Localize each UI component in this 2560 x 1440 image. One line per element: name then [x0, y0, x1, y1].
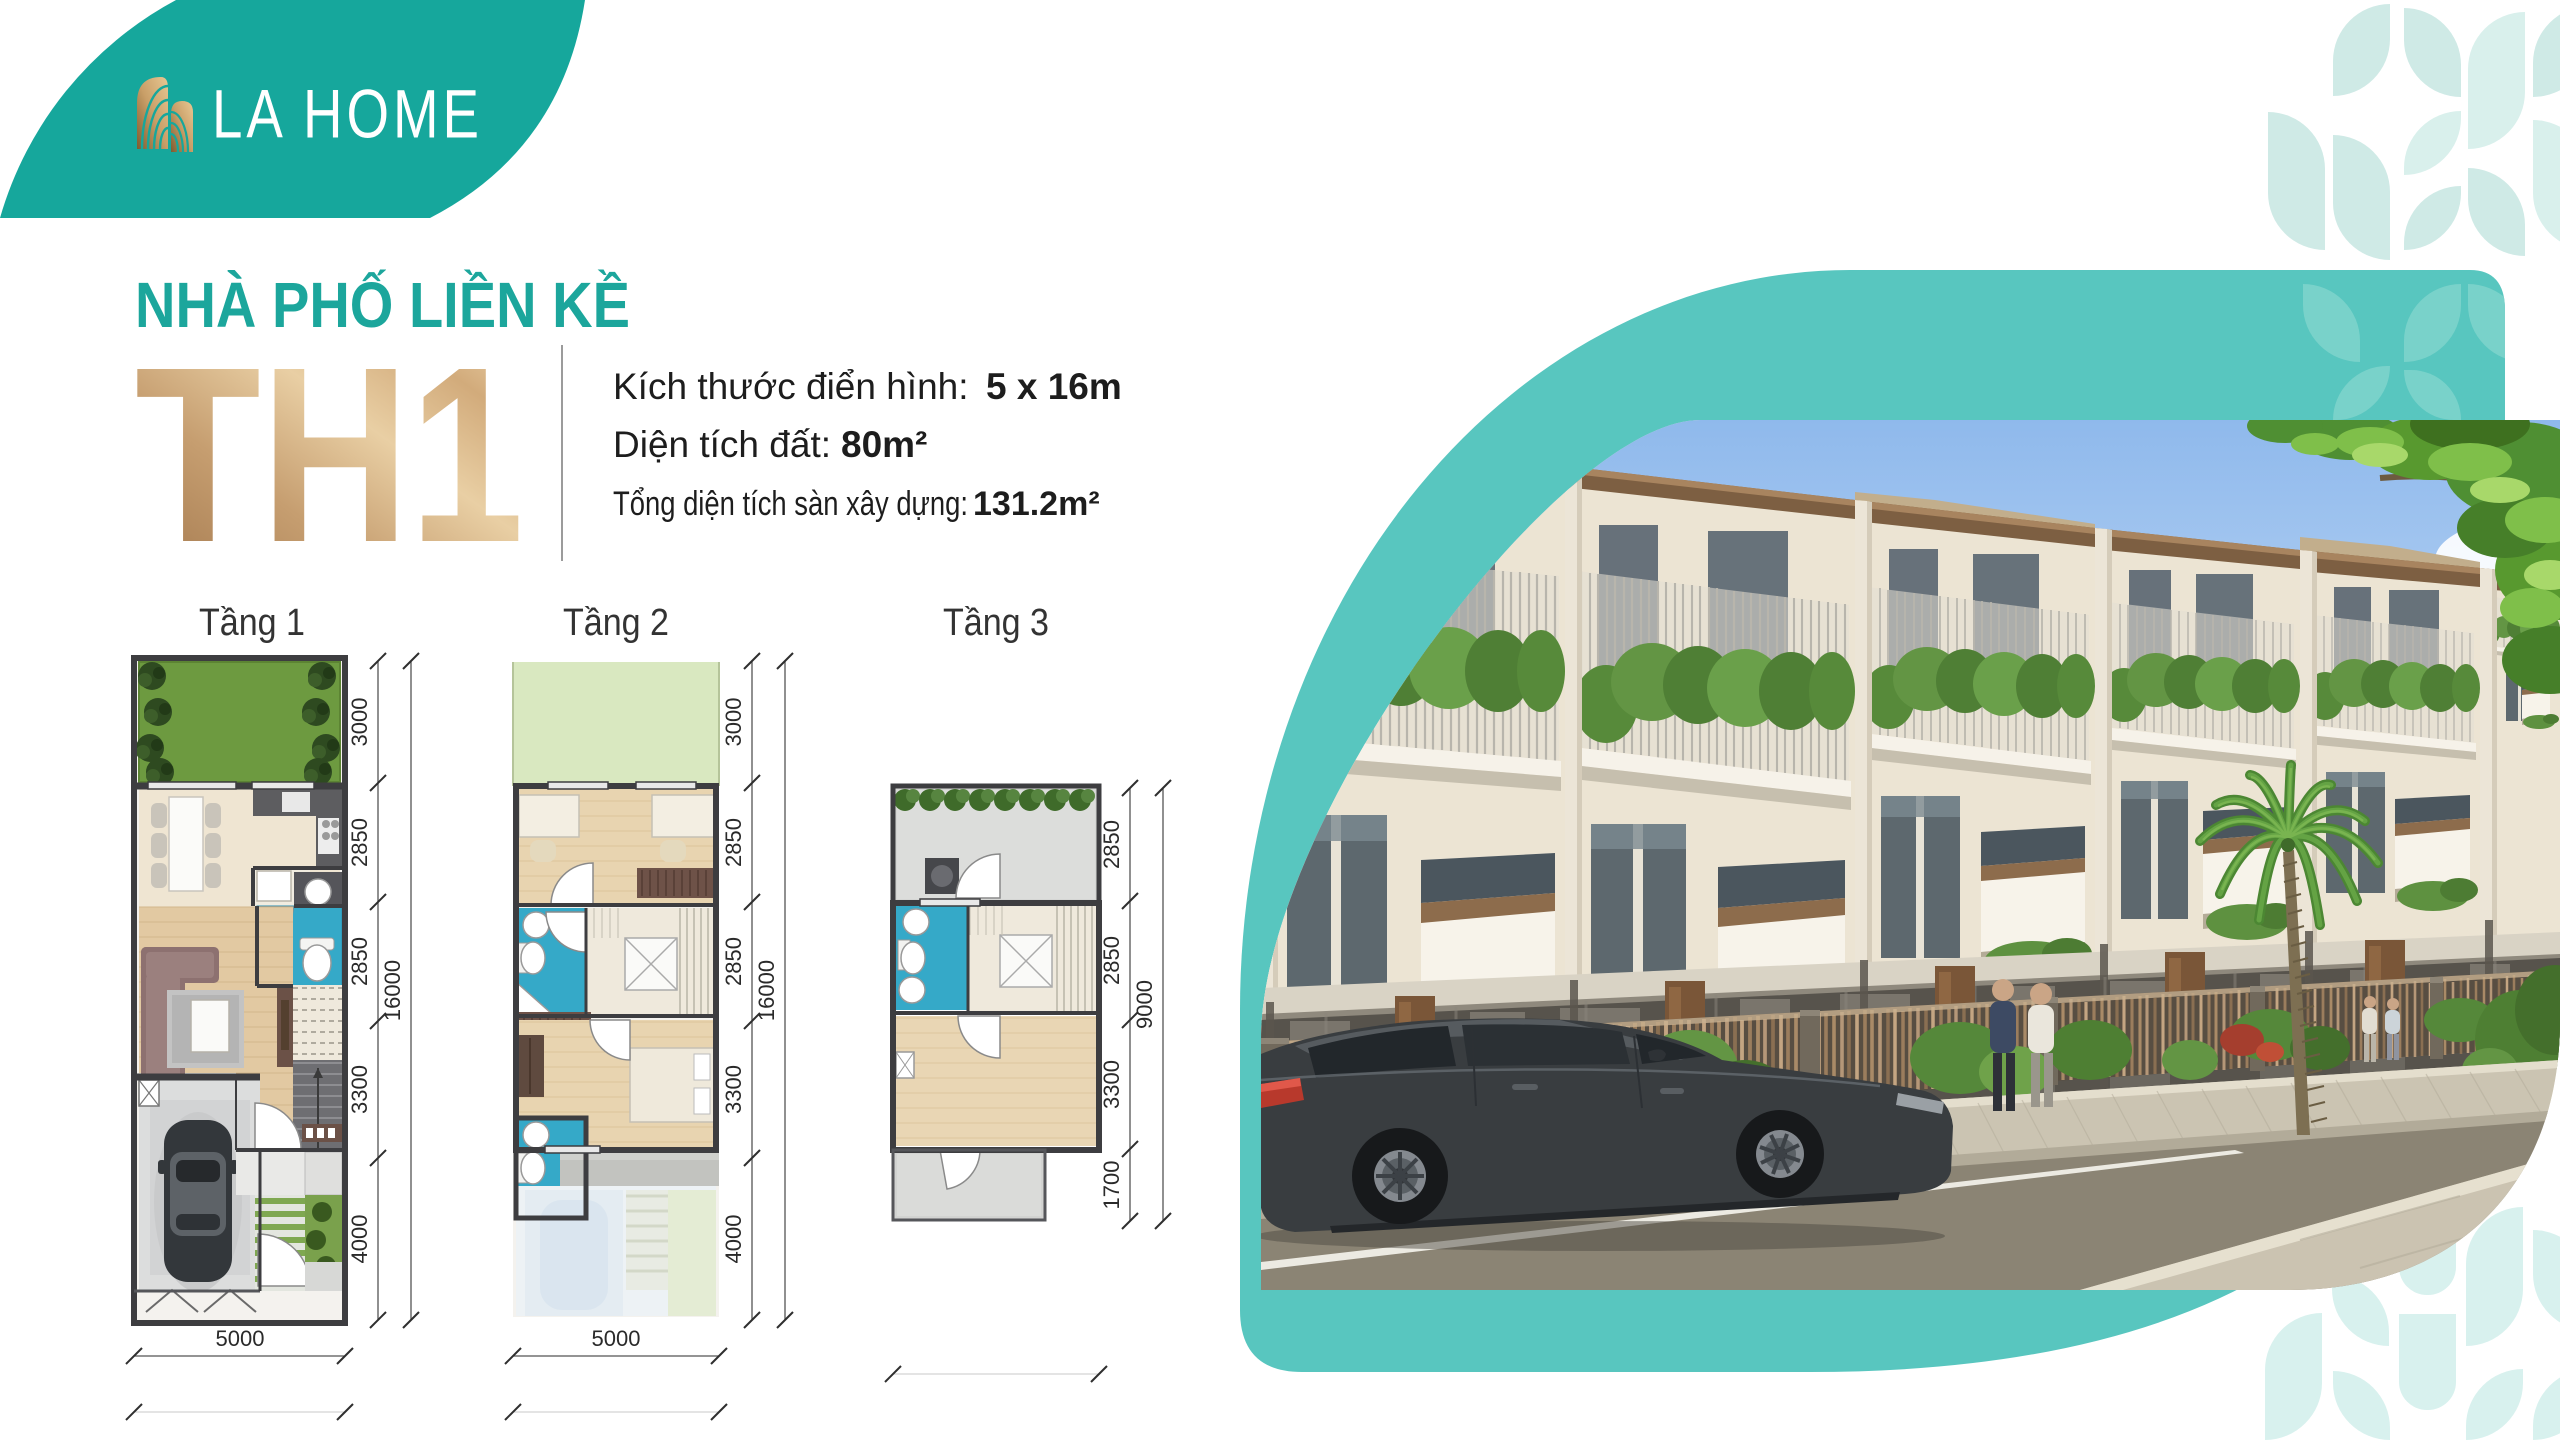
svg-text:5000: 5000: [592, 1326, 641, 1351]
svg-text:2850: 2850: [1099, 936, 1124, 985]
svg-text:3300: 3300: [1099, 1060, 1124, 1109]
svg-text:LA HOME: LA HOME: [212, 77, 483, 153]
svg-text:4000: 4000: [721, 1215, 746, 1264]
svg-text:3300: 3300: [721, 1065, 746, 1114]
svg-text:Diện tích đất:: Diện tích đất:: [613, 424, 831, 465]
svg-text:TH1: TH1: [135, 315, 524, 594]
svg-text:3300: 3300: [347, 1065, 372, 1114]
svg-text:2850: 2850: [721, 937, 746, 986]
svg-text:131.2m²: 131.2m²: [973, 485, 1100, 523]
svg-text:9000: 9000: [1132, 980, 1157, 1029]
svg-text:Tầng 3: Tầng 3: [943, 602, 1049, 644]
svg-text:5000: 5000: [216, 1326, 265, 1351]
svg-text:3000: 3000: [721, 698, 746, 747]
svg-text:3000: 3000: [347, 698, 372, 747]
svg-text:Tầng 2: Tầng 2: [563, 602, 669, 644]
svg-text:2850: 2850: [347, 937, 372, 986]
svg-text:Tầng 1: Tầng 1: [199, 602, 305, 644]
svg-text:2850: 2850: [347, 818, 372, 867]
svg-text:2850: 2850: [1099, 820, 1124, 869]
svg-text:5 x 16m: 5 x 16m: [986, 366, 1122, 407]
svg-text:Kích thước điển hình:: Kích thước điển hình:: [613, 366, 969, 407]
svg-text:80m²: 80m²: [841, 424, 927, 465]
svg-text:2850: 2850: [721, 818, 746, 867]
svg-text:Tổng diện tích sàn xây dựng:: Tổng diện tích sàn xây dựng:: [613, 485, 968, 523]
svg-text:16000: 16000: [380, 960, 405, 1021]
svg-text:16000: 16000: [754, 960, 779, 1021]
svg-text:1700: 1700: [1099, 1161, 1124, 1210]
svg-text:4000: 4000: [347, 1215, 372, 1264]
